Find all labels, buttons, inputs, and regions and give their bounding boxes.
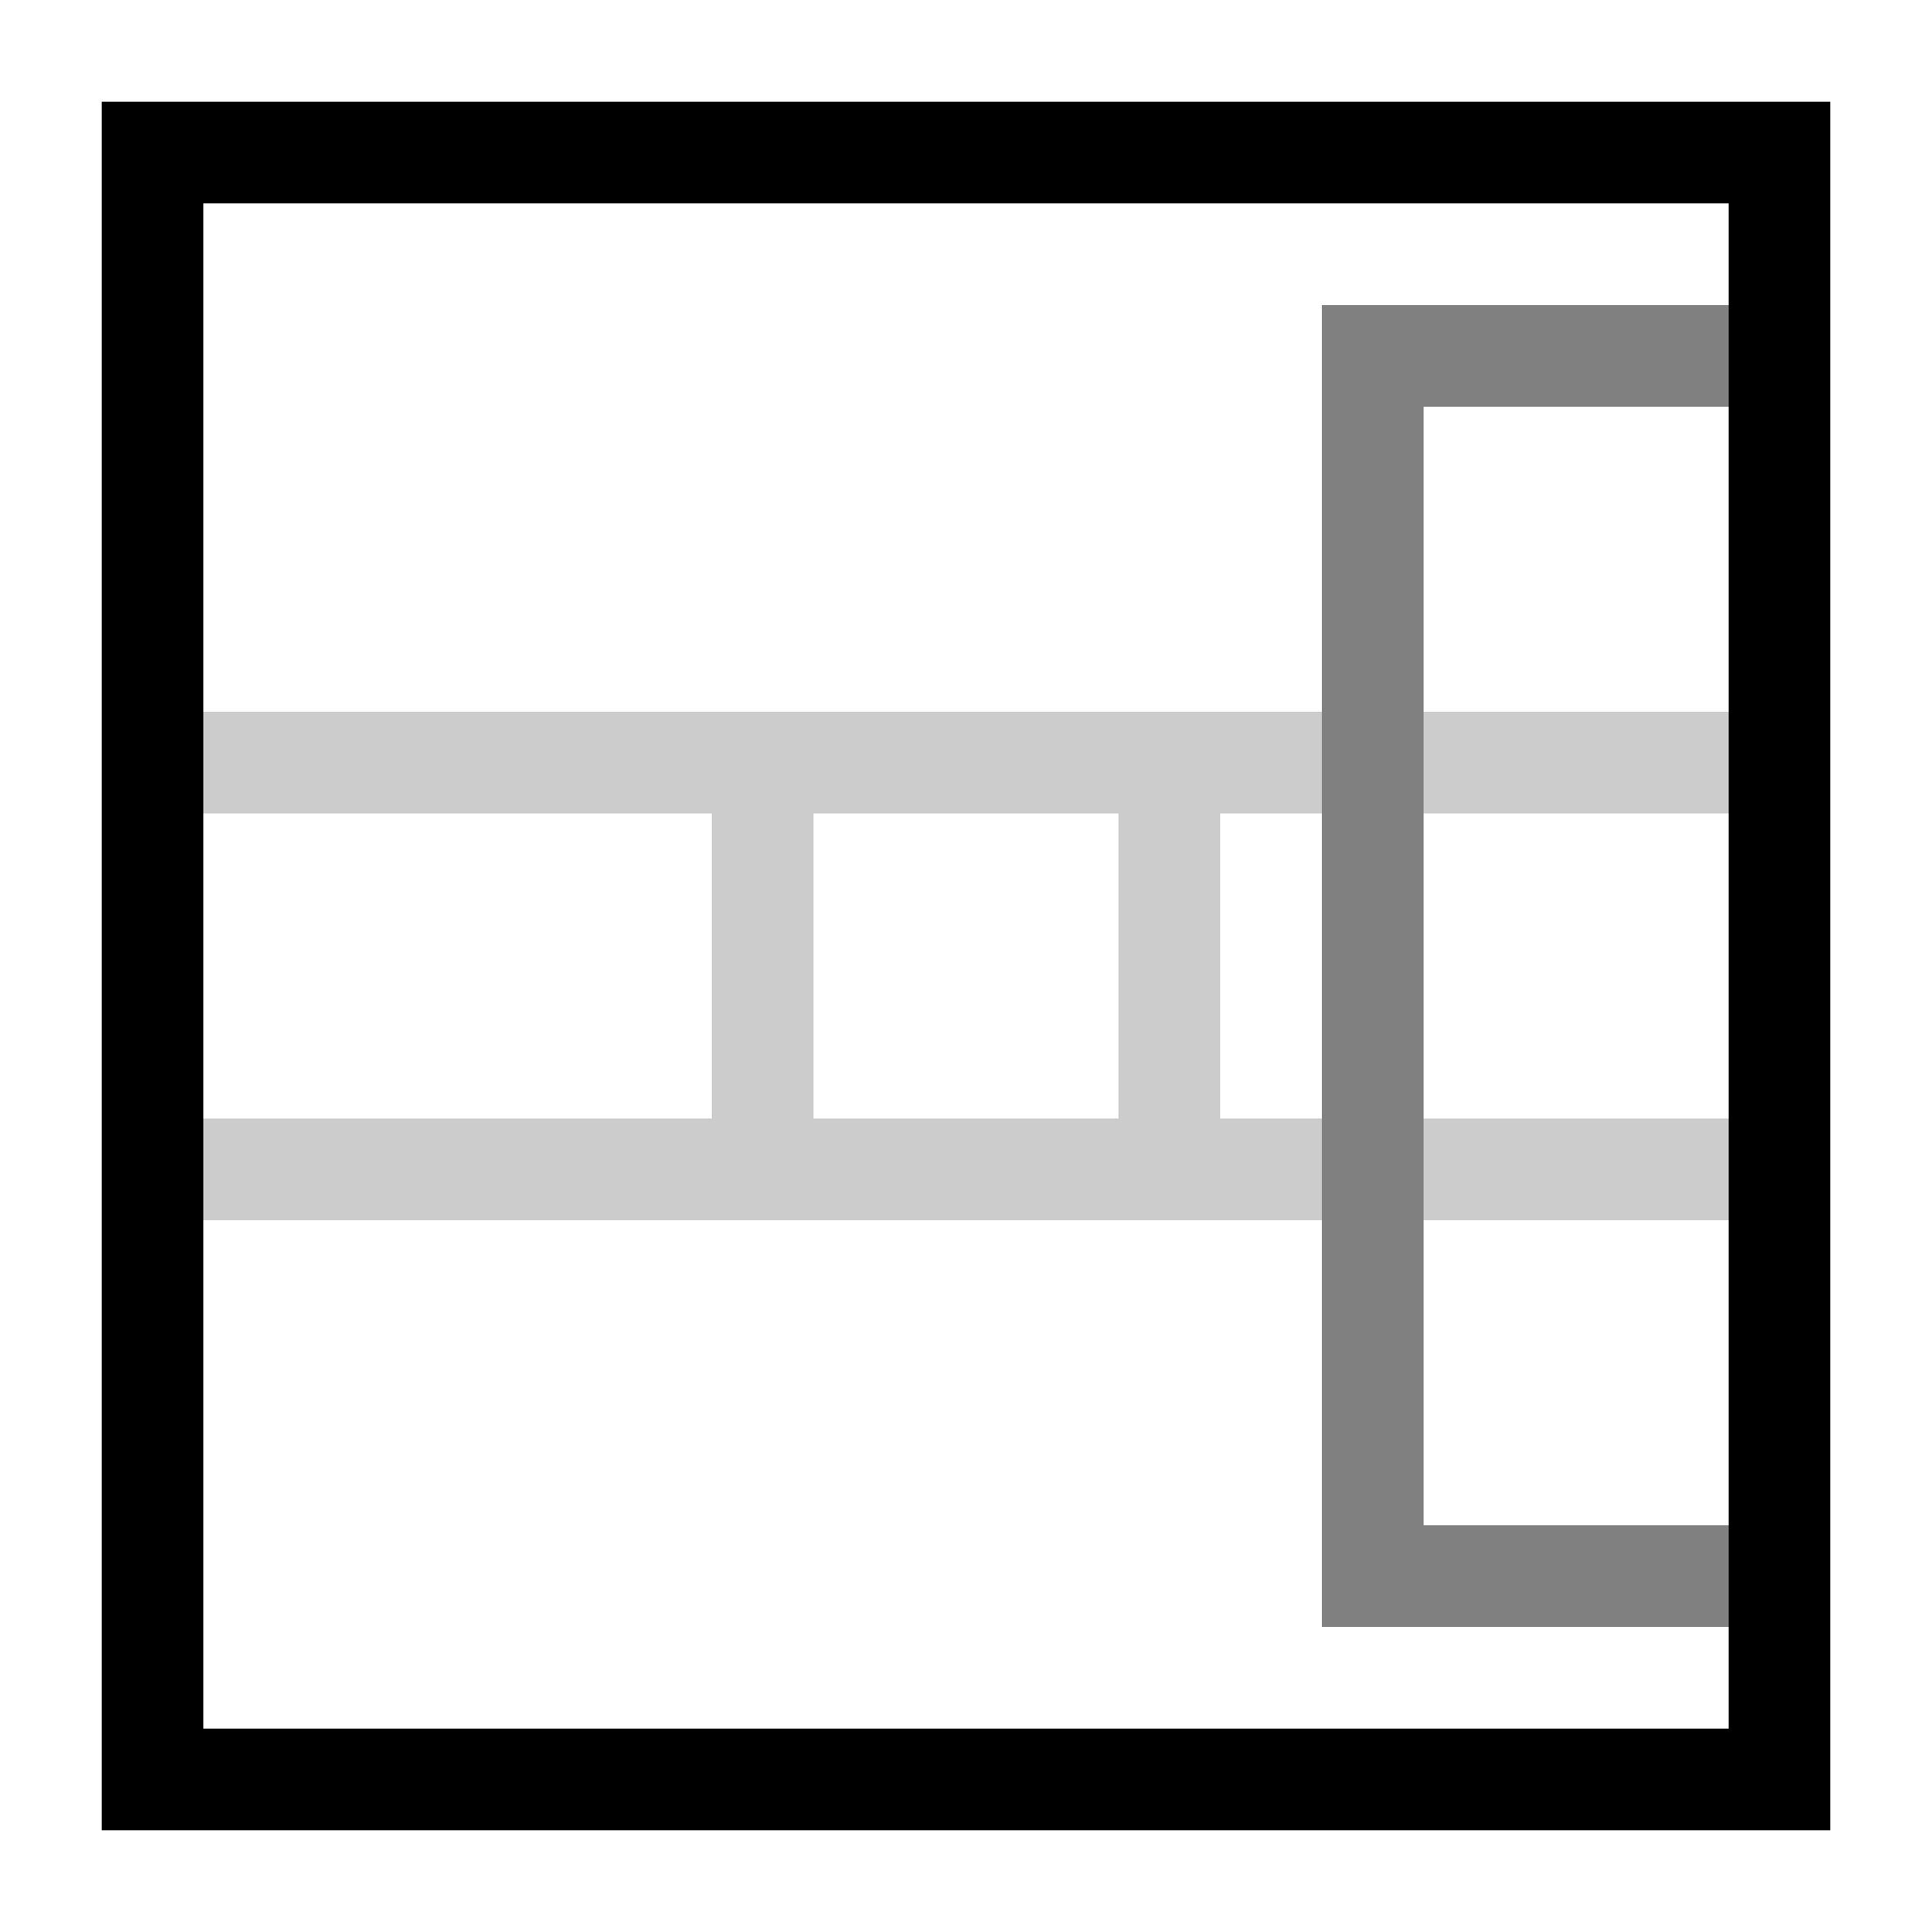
gridline-column-divider-1 [712, 813, 813, 1119]
icon-frame-top-edge [102, 102, 1830, 203]
icon-frame-bottom-edge [102, 1729, 1830, 1830]
icon-frame-right-edge [1729, 203, 1830, 1729]
icon-frame-left-edge [102, 203, 203, 1729]
highlight-pane-left-edge [1322, 305, 1424, 1627]
gridline-row-bottom [203, 1119, 1729, 1220]
highlight-pane-bottom-edge [1424, 1525, 1729, 1627]
gridline-column-divider-2 [1119, 813, 1220, 1119]
highlight-pane-top-edge [1424, 305, 1729, 407]
freeze-rows-and-columns-icon [0, 0, 1932, 1932]
gridline-row-top [203, 712, 1729, 813]
